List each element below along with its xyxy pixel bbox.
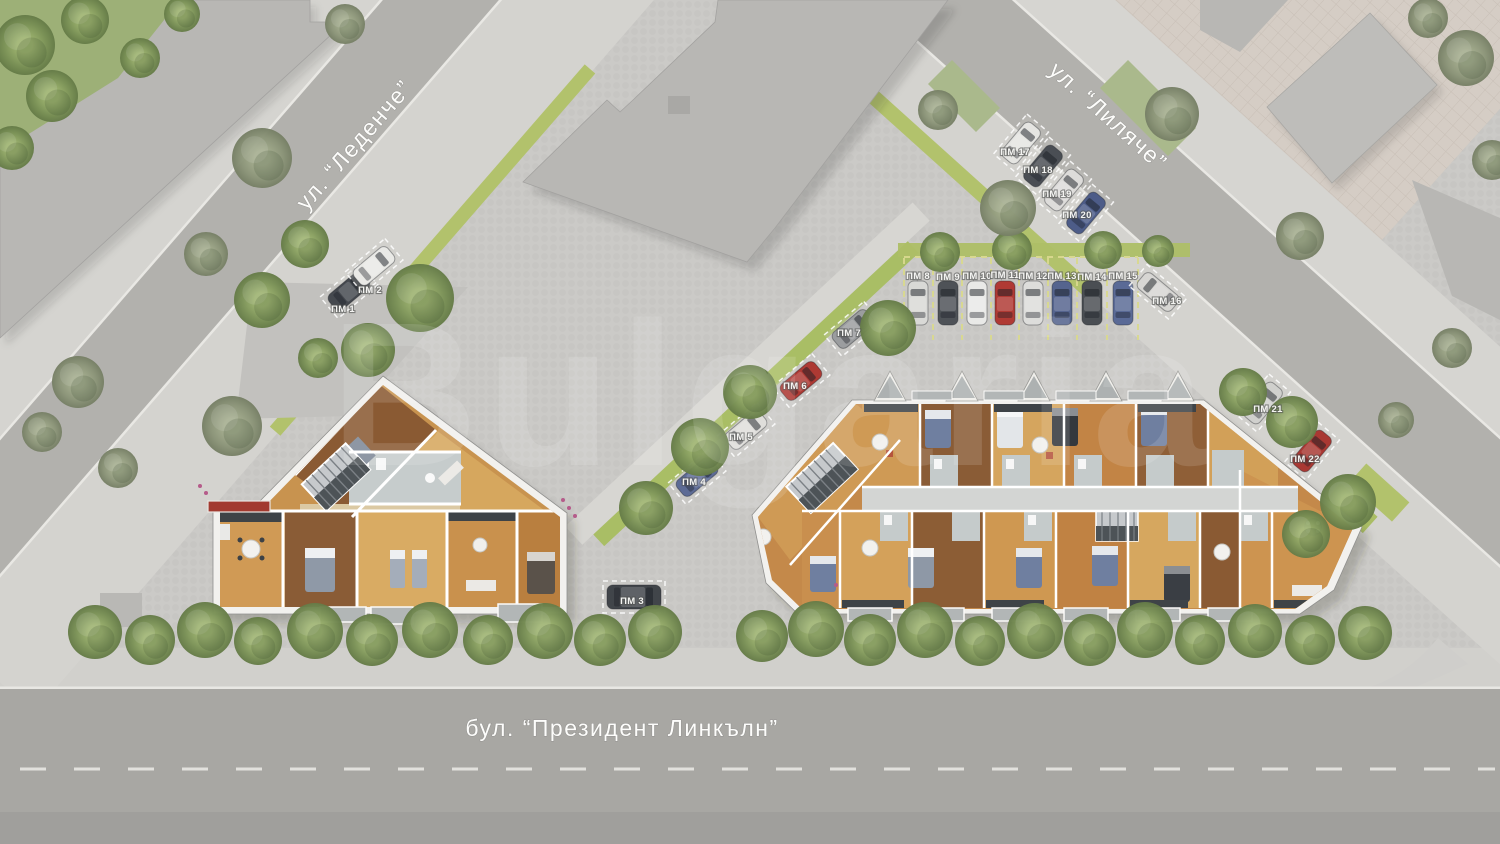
tree [920,232,960,272]
tree [1276,212,1324,260]
tree [22,412,62,452]
tree [736,610,788,662]
street-label-lincoln: бул. “Президент Линкълн” [465,715,778,741]
tree [98,448,138,488]
parking-spot-label: ПМ 17 [1000,147,1029,158]
tree [463,615,513,665]
tree [1142,235,1174,267]
tree [1432,328,1472,368]
tree [955,616,1005,666]
tree [287,603,343,659]
watermark: Bulgaria [330,280,1214,509]
tree [325,4,365,44]
tree [234,617,282,665]
parking-spot-label: ПМ 22 [1290,454,1319,465]
tree [1175,615,1225,665]
tree [897,602,953,658]
parking-spot-label: ПМ 18 [1023,165,1052,176]
tree [232,128,292,188]
tree [1228,604,1282,658]
red-awning [208,501,270,512]
parking-spot-label: ПМ 19 [1042,189,1071,200]
tree [52,356,104,408]
tree [918,90,958,130]
roof-feature [668,96,690,114]
tree [1282,510,1330,558]
tree [1438,30,1494,86]
tree [177,602,233,658]
tree [628,605,682,659]
tree [1084,231,1122,269]
tree [980,180,1036,236]
tree [68,605,122,659]
tree [202,396,262,456]
tree [402,602,458,658]
tree [844,614,896,666]
tree [992,230,1032,270]
tree [281,220,329,268]
tree [517,603,573,659]
parking-spot-label: ПМ 21 [1253,404,1283,415]
parking-spot-label: ПМ 20 [1062,210,1091,221]
tree [1007,603,1063,659]
tree [1064,614,1116,666]
parking-spot-label: ПМ 3 [620,596,644,607]
car-windshield [646,588,653,607]
tree [1117,602,1173,658]
tree [125,615,175,665]
site-plan: ПМ 1ПМ 2ПМ 3ПМ 4ПМ 5ПМ 6ПМ 7ПМ 8ПМ 9ПМ 1… [0,0,1500,844]
tree [120,38,160,78]
tree [346,614,398,666]
tree [1338,606,1392,660]
tree [234,272,290,328]
tree [1145,87,1199,141]
tree [574,614,626,666]
tree [788,601,844,657]
tree [1378,402,1414,438]
tree [26,70,78,122]
tree [1285,615,1335,665]
tree [184,232,228,276]
tree [1320,474,1376,530]
